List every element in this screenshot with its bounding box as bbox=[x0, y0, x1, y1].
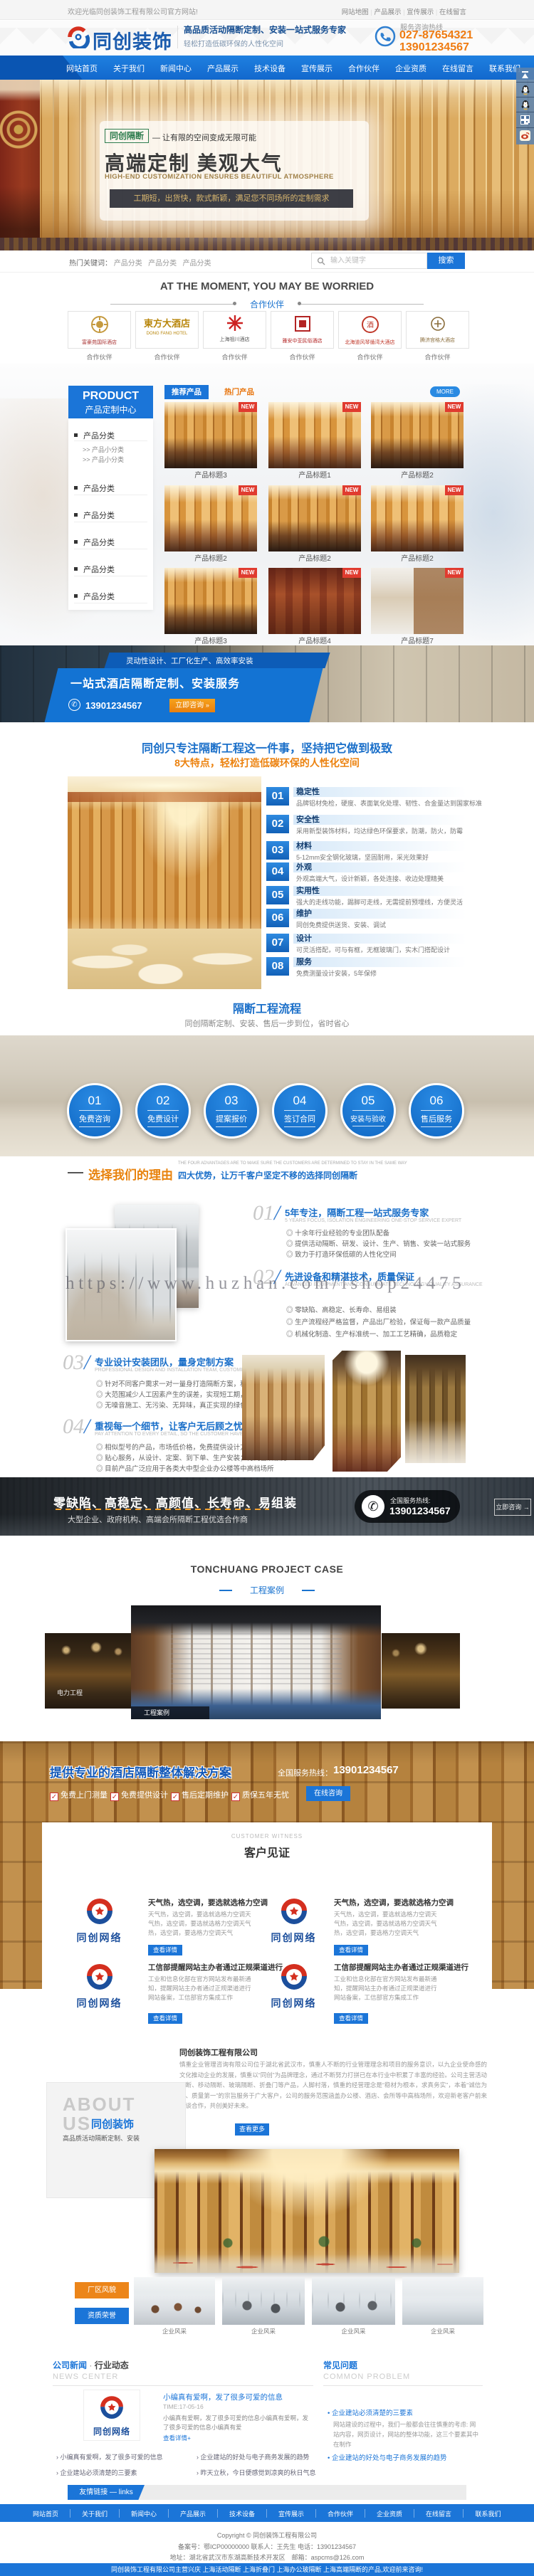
svg-text:酒: 酒 bbox=[367, 321, 374, 329]
